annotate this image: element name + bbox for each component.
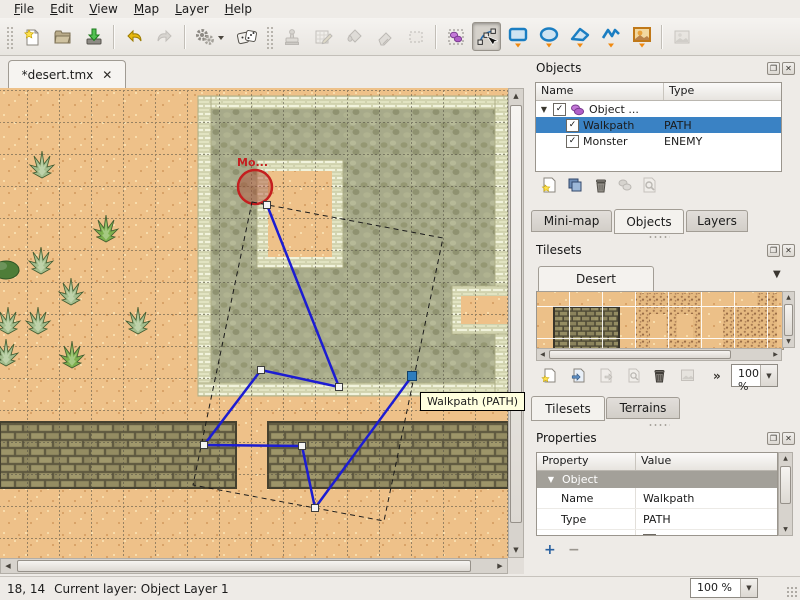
combo-dropdown-icon[interactable]: ▼ xyxy=(740,579,757,597)
properties-vscrollbar[interactable]: ▲ ▼ xyxy=(778,452,793,536)
tileset-zoom-value: 100 % xyxy=(732,365,760,386)
object-layer-row[interactable]: ▼ ✓ Object ... xyxy=(536,101,781,117)
tab-layers[interactable]: Layers xyxy=(686,210,748,232)
monster-name: Monster xyxy=(583,135,628,148)
trash-icon xyxy=(592,176,610,194)
insert-ellipse-button[interactable] xyxy=(534,22,563,51)
property-value[interactable]: PATH xyxy=(636,513,671,526)
redo-button[interactable] xyxy=(150,22,179,51)
statusbar-zoom-combo[interactable]: 100 % ▼ xyxy=(690,578,758,598)
group-label: Object xyxy=(562,473,598,486)
properties-dock-title: Properties xyxy=(536,431,597,445)
map-image-icon xyxy=(672,27,692,47)
scroll-down-icon[interactable]: ▼ xyxy=(780,524,791,535)
inspect-icon xyxy=(640,176,658,194)
inspect-icon xyxy=(625,367,642,384)
insert-polyline-button[interactable] xyxy=(596,22,625,51)
tileset-view[interactable] xyxy=(536,291,784,350)
menu-help[interactable]: Help xyxy=(217,1,260,17)
redo-icon xyxy=(155,27,175,47)
tab-tilesets[interactable]: Tilesets xyxy=(531,396,605,421)
remove-tileset-button[interactable] xyxy=(649,365,669,385)
monster-type: ENEMY xyxy=(664,135,702,148)
gears-icon xyxy=(194,27,226,47)
save-icon xyxy=(84,27,104,47)
tileset-dropdown-icon[interactable]: ▼ xyxy=(773,269,781,280)
import-tileset-button[interactable] xyxy=(567,365,587,385)
menu-map[interactable]: Map xyxy=(126,1,167,17)
vertex-handle[interactable] xyxy=(312,505,319,512)
scroll-down-icon[interactable]: ▼ xyxy=(509,543,523,557)
edit-polygons-button[interactable] xyxy=(472,22,501,51)
tab-desert-tmx[interactable]: *desert.tmx ✕ xyxy=(8,60,126,89)
insert-polygon-button[interactable] xyxy=(565,22,594,51)
walkpath-type: PATH xyxy=(664,119,692,132)
open-folder-icon xyxy=(53,27,73,47)
column-name[interactable]: Name xyxy=(536,83,664,100)
dock-splitter-handle[interactable] xyxy=(648,423,670,427)
rectangular-select-button[interactable] xyxy=(401,22,430,51)
tab-terrains[interactable]: Terrains xyxy=(606,397,680,419)
hscroll-thumb[interactable] xyxy=(17,560,471,572)
column-type[interactable]: Type xyxy=(664,83,699,100)
statusbar-zoom-value: 100 % xyxy=(691,579,740,597)
dice-icon xyxy=(236,27,258,47)
scroll-right-icon[interactable]: ▶ xyxy=(493,559,507,573)
menu-layer[interactable]: Layer xyxy=(167,1,216,17)
vertex-handle[interactable] xyxy=(258,367,265,374)
insert-tile-object-button[interactable] xyxy=(627,22,656,51)
status-bar: 18, 14 Current layer: Object Layer 1 xyxy=(0,576,800,600)
properties-table: Property Value ▼ Object Name Walkpath Ty… xyxy=(536,452,778,536)
stamp-icon xyxy=(282,27,302,47)
export-tileset-button[interactable] xyxy=(595,365,615,385)
insert-rectangle-icon xyxy=(507,25,529,49)
tool-presets-button[interactable] xyxy=(190,22,230,51)
open-button[interactable] xyxy=(48,22,77,51)
scroll-up-icon[interactable]: ▲ xyxy=(780,453,791,464)
monster-visible-checkbox[interactable]: ✓ xyxy=(566,135,579,148)
map-hscrollbar[interactable]: ◀ ▶ xyxy=(0,558,508,574)
properties-float-button[interactable]: ❐ xyxy=(767,432,780,445)
property-row-visible[interactable]: Visible ✓ xyxy=(537,530,777,536)
main-toolbar xyxy=(0,18,800,56)
scroll-corner xyxy=(508,558,524,574)
walkpath-name: Walkpath xyxy=(583,119,634,132)
random-mode-button[interactable] xyxy=(232,22,261,51)
tab-tileset-desert[interactable]: Desert xyxy=(538,266,654,292)
tileset-hscroll-thumb[interactable] xyxy=(549,350,731,359)
tileset-vscrollbar[interactable]: ▲ ▼ xyxy=(782,291,795,348)
property-name: Name xyxy=(537,488,636,508)
toolbar-separator xyxy=(435,25,436,49)
object-properties-button[interactable] xyxy=(614,174,636,196)
vertex-handle[interactable] xyxy=(264,202,271,209)
expander-icon[interactable]: ▼ xyxy=(539,105,549,114)
map-canvas[interactable]: Mo... xyxy=(0,88,508,558)
tileset-properties-button[interactable] xyxy=(623,365,643,385)
edit-polygons-icon xyxy=(476,26,498,48)
vertex-handle[interactable] xyxy=(336,384,343,391)
new-button[interactable] xyxy=(17,22,46,51)
objects-table: Name Type ▼ ✓ Object ... ✓ Walkpath PATH xyxy=(535,82,782,172)
new-file-icon xyxy=(22,27,42,47)
tiled-window: File Edit View Map Layer Help xyxy=(0,0,800,600)
toolbar-overflow-icon[interactable]: » xyxy=(713,369,721,383)
export-icon xyxy=(597,367,614,384)
image-icon xyxy=(679,367,696,384)
objects-table-header[interactable]: Name Type xyxy=(536,83,781,101)
undo-button[interactable] xyxy=(119,22,148,51)
save-button[interactable] xyxy=(79,22,108,51)
remove-property-button[interactable]: − xyxy=(568,542,580,558)
property-row-type[interactable]: Type PATH xyxy=(537,509,777,530)
tileset-vscroll-thumb[interactable] xyxy=(784,304,793,336)
tilesets-close-button[interactable]: ✕ xyxy=(782,244,795,257)
tilesets-float-button[interactable]: ❐ xyxy=(767,244,780,257)
tab-mini-map[interactable]: Mini-map xyxy=(531,210,612,232)
visible-value-checkbox[interactable]: ✓ xyxy=(643,534,656,537)
new-layer-icon xyxy=(540,176,558,194)
toolbar-handle[interactable] xyxy=(265,25,273,49)
bucket-fill-button[interactable] xyxy=(339,22,368,51)
vertex-handle[interactable] xyxy=(201,442,208,449)
map-image-button[interactable] xyxy=(667,22,696,51)
property-value[interactable]: Walkpath xyxy=(636,492,694,505)
tilesets-dock-title: Tilesets xyxy=(536,243,582,257)
scroll-up-icon[interactable]: ▲ xyxy=(509,89,523,103)
toolbar-handle[interactable] xyxy=(5,25,13,49)
terrain-brush-button[interactable] xyxy=(308,22,337,51)
object-tooltip: Walkpath (PATH) xyxy=(420,392,525,411)
map-vscrollbar[interactable]: ▲ ▼ xyxy=(508,88,524,558)
eraser-button[interactable] xyxy=(370,22,399,51)
object-group-icon xyxy=(570,103,585,116)
import-icon xyxy=(569,367,586,384)
insert-tile-object-icon xyxy=(631,25,653,49)
rect-select-icon xyxy=(406,27,426,47)
terrain-icon xyxy=(313,27,333,47)
stamp-brush-button[interactable] xyxy=(277,22,306,51)
insert-polygon-icon xyxy=(569,25,591,49)
properties-table-header[interactable]: Property Value xyxy=(537,453,777,471)
insert-polyline-icon xyxy=(600,25,622,49)
objects-dock-title: Objects xyxy=(536,61,581,75)
current-layer-label: Current layer: Object Layer 1 xyxy=(54,582,228,596)
walkpath-visible-checkbox[interactable]: ✓ xyxy=(566,119,579,132)
column-value[interactable]: Value xyxy=(636,453,676,470)
property-group-object[interactable]: ▼ Object xyxy=(537,471,777,488)
insert-rectangle-button[interactable] xyxy=(503,22,532,51)
vertex-handle[interactable] xyxy=(299,443,306,450)
menu-view[interactable]: View xyxy=(81,1,125,17)
bucket-icon xyxy=(344,27,364,47)
remove-objects-button[interactable] xyxy=(590,174,612,196)
insert-ellipse-icon xyxy=(538,25,560,49)
property-row-name[interactable]: Name Walkpath xyxy=(537,488,777,509)
monster-ellipse xyxy=(238,170,272,204)
toolbar-separator xyxy=(661,25,662,49)
menu-edit[interactable]: Edit xyxy=(42,1,81,17)
tileset-hscrollbar[interactable]: ◀ ▶ xyxy=(536,348,782,361)
expander-icon[interactable]: ▼ xyxy=(546,475,556,484)
layer-visible-checkbox[interactable]: ✓ xyxy=(553,103,566,116)
vscroll-thumb[interactable] xyxy=(510,105,522,523)
scroll-down-icon[interactable]: ▼ xyxy=(783,336,794,347)
right-dock-area: Objects ❐ ✕ Name Type ▼ ✓ Object ... ✓ W… xyxy=(530,57,800,576)
menu-file[interactable]: File xyxy=(6,1,42,17)
scroll-left-icon[interactable]: ◀ xyxy=(1,559,15,573)
trash-icon xyxy=(651,367,668,384)
tab-objects[interactable]: Objects xyxy=(614,209,684,234)
tileset-zoom-combo[interactable]: 100 % ▼ xyxy=(731,364,778,387)
document-tab-title: *desert.tmx xyxy=(22,68,94,82)
selected-vertex-handle[interactable] xyxy=(408,372,417,381)
duplicate-objects-button[interactable] xyxy=(564,174,586,196)
cursor-coordinates: 18, 14 xyxy=(7,582,45,596)
resize-grip[interactable] xyxy=(786,586,798,598)
objects-float-button[interactable]: ❐ xyxy=(767,62,780,75)
combo-dropdown-icon[interactable]: ▼ xyxy=(760,365,777,386)
properties-vscroll-thumb[interactable] xyxy=(780,466,791,504)
goto-object-button[interactable] xyxy=(638,174,660,196)
select-objects-button[interactable] xyxy=(441,22,470,51)
dock-splitter-handle[interactable] xyxy=(648,235,670,239)
objects-close-button[interactable]: ✕ xyxy=(782,62,795,75)
undo-icon xyxy=(124,27,144,47)
toolbar-separator xyxy=(184,25,185,49)
add-property-button[interactable]: + xyxy=(544,542,556,558)
properties-close-button[interactable]: ✕ xyxy=(782,432,795,445)
scroll-left-icon[interactable]: ◀ xyxy=(537,349,548,360)
toolbar-separator xyxy=(113,25,114,49)
monster-row[interactable]: ✓ Monster ENEMY xyxy=(536,133,781,149)
property-name: Type xyxy=(537,509,636,529)
column-property[interactable]: Property xyxy=(537,453,636,470)
shapes-icon xyxy=(616,176,634,194)
walkpath-row[interactable]: ✓ Walkpath PATH xyxy=(536,117,781,133)
new-tileset-icon xyxy=(541,367,558,384)
select-objects-icon xyxy=(446,27,466,47)
object-layer-name: Object ... xyxy=(589,103,639,116)
scroll-right-icon[interactable]: ▶ xyxy=(770,349,781,360)
scroll-up-icon[interactable]: ▲ xyxy=(783,292,794,303)
new-object-layer-button[interactable] xyxy=(538,174,560,196)
property-name: Visible xyxy=(537,530,636,536)
tab-close-icon[interactable]: ✕ xyxy=(102,68,112,82)
eraser-icon xyxy=(375,27,395,47)
edit-tileset-button[interactable] xyxy=(677,365,697,385)
monster-object[interactable]: Mo... xyxy=(237,156,272,204)
new-tileset-button[interactable] xyxy=(539,365,559,385)
menubar: File Edit View Map Layer Help xyxy=(0,0,800,18)
duplicate-icon xyxy=(566,176,584,194)
monster-label: Mo... xyxy=(237,156,268,169)
